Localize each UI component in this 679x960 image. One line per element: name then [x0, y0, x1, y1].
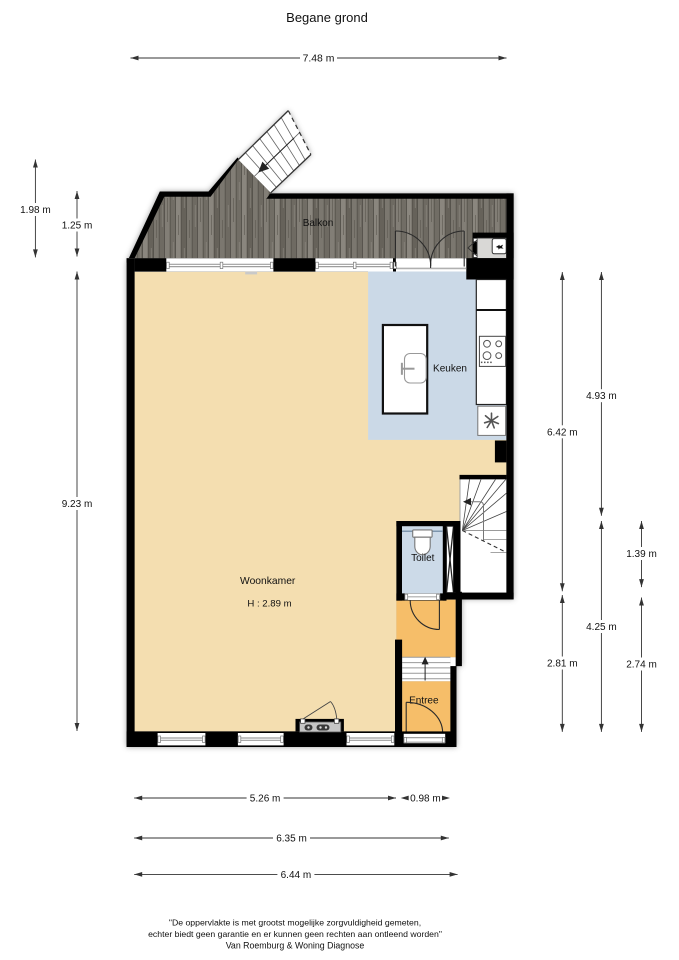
svg-text:Balkon: Balkon [303, 218, 334, 229]
svg-text:"De oppervlakte is met grootst: "De oppervlakte is met grootst mogelijke… [169, 918, 421, 928]
svg-text:6.44 m: 6.44 m [281, 870, 312, 881]
svg-text:1.98 m: 1.98 m [20, 205, 51, 216]
svg-text:Van Roemburg & Woning Diagnose: Van Roemburg & Woning Diagnose [226, 941, 365, 951]
svg-text:2.81 m: 2.81 m [547, 659, 578, 670]
svg-text:6.42 m: 6.42 m [547, 427, 578, 438]
svg-text:0.98 m: 0.98 m [410, 794, 441, 805]
svg-text:9.23 m: 9.23 m [62, 499, 93, 510]
svg-text:5.26 m: 5.26 m [250, 794, 281, 805]
svg-text:1.39 m: 1.39 m [626, 549, 657, 560]
svg-text:2.74 m: 2.74 m [626, 660, 657, 671]
svg-text:1.25 m: 1.25 m [62, 221, 93, 232]
svg-text:H : 2.89 m: H : 2.89 m [247, 599, 291, 610]
svg-text:4.93 m: 4.93 m [586, 391, 617, 402]
svg-text:Woonkamer: Woonkamer [240, 576, 296, 587]
svg-text:7.48 m: 7.48 m [303, 54, 335, 65]
svg-text:Begane grond: Begane grond [286, 10, 368, 25]
svg-text:4.25 m: 4.25 m [586, 622, 617, 633]
svg-text:Entree: Entree [409, 696, 439, 707]
svg-text:echter biedt geen garantie en: echter biedt geen garantie en er kunnen … [148, 929, 442, 939]
svg-text:Keuken: Keuken [433, 364, 467, 375]
svg-text:6.35 m: 6.35 m [276, 834, 307, 845]
svg-text:Toilet: Toilet [411, 553, 435, 564]
